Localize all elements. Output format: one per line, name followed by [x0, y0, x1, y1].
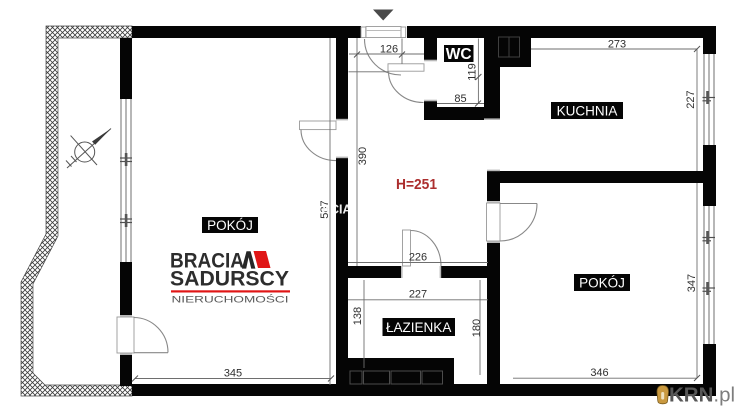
svg-text:POKÓJ: POKÓJ: [207, 218, 253, 233]
svg-text:WC: WC: [446, 46, 472, 63]
svg-text:85: 85: [454, 93, 466, 105]
svg-text:273: 273: [608, 39, 626, 51]
svg-text:227: 227: [685, 90, 697, 108]
svg-text:H=251: H=251: [396, 176, 437, 193]
svg-text:BRACIA: BRACIA: [303, 203, 352, 217]
svg-text:346: 346: [590, 367, 608, 379]
svg-text:227: 227: [409, 289, 427, 301]
svg-text:138: 138: [352, 307, 364, 325]
svg-text:POKÓJ: POKÓJ: [579, 276, 625, 291]
svg-text:SADURSCY: SADURSCY: [170, 266, 289, 290]
svg-text:347: 347: [686, 274, 698, 292]
svg-text:ŁAZIENKA: ŁAZIENKA: [386, 320, 451, 335]
svg-text:KRN.pl: KRN.pl: [669, 384, 735, 407]
svg-text:119: 119: [467, 63, 479, 81]
svg-text:226: 226: [409, 252, 427, 264]
svg-text:NIERUCHOMOŚCI: NIERUCHOMOŚCI: [172, 294, 289, 305]
svg-text:390: 390: [357, 147, 369, 165]
svg-text:126: 126: [380, 44, 398, 56]
svg-text:180: 180: [471, 319, 483, 337]
svg-text:345: 345: [224, 368, 242, 380]
svg-text:KUCHNIA: KUCHNIA: [557, 104, 618, 119]
